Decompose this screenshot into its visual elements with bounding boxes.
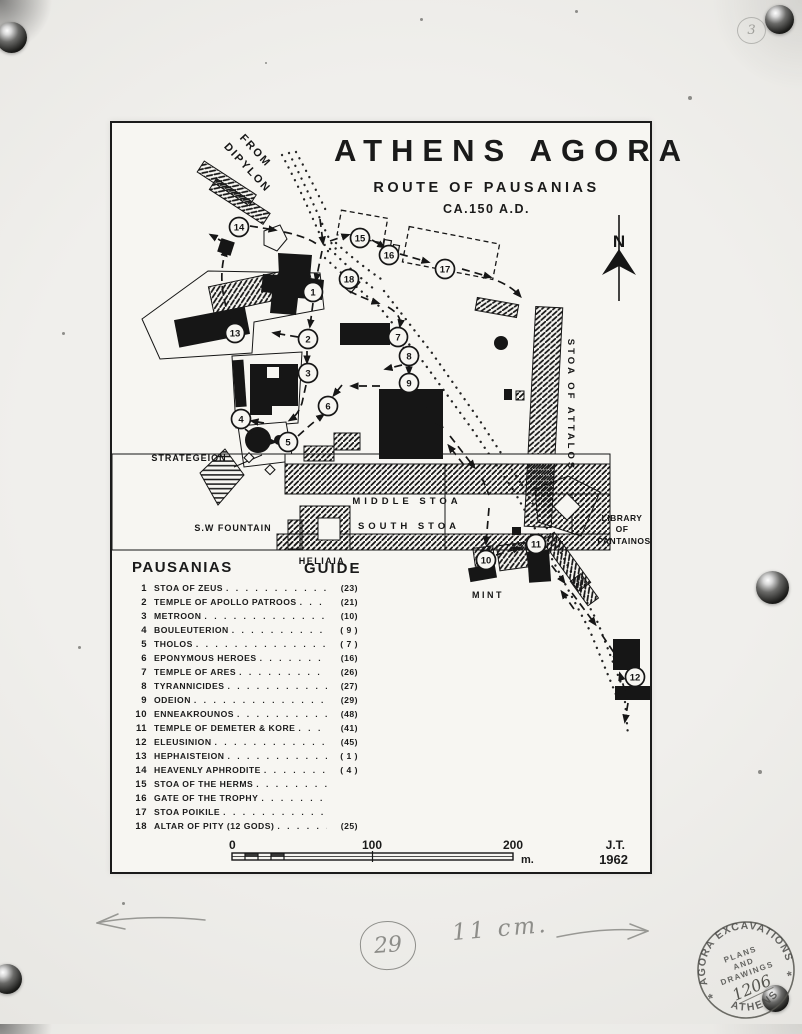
route-marker: 18 [340, 270, 359, 289]
legend-dot-leader [300, 597, 327, 607]
legend-item-number: 17 [132, 807, 147, 818]
route-marker: 9 [400, 374, 419, 393]
legend-list: 1STOA OF ZEUS(23)2TEMPLE OF APOLLO PATRO… [132, 583, 358, 835]
route-marker: 6 [319, 397, 338, 416]
route-marker-number: 10 [481, 555, 492, 566]
legend-item-name: STOA POIKILE [154, 807, 220, 817]
legend-item-name: ODEION [154, 695, 191, 705]
legend-item-number: 5 [132, 639, 147, 650]
route-marker: 15 [351, 229, 370, 248]
legend-item-name: ELEUSINION [154, 737, 212, 747]
stamp-star-left: * [706, 990, 716, 1006]
legend-item-name: BOULEUTERION [154, 625, 229, 635]
dust-speck [575, 10, 578, 13]
route-marker: 16 [380, 246, 399, 265]
legend-item-ref: (45) [330, 737, 358, 747]
legend-item-name: METROON [154, 611, 201, 621]
legend-item: 13HEPHAISTEION( 1 ) [132, 751, 358, 765]
scale-tick-100: 100 [362, 838, 382, 852]
legend-item: 2TEMPLE OF APOLLO PATROOS(21) [132, 597, 358, 611]
legend-dot-leader [204, 611, 327, 621]
map-sheet: FROMDIPYLONNSTRATEGEIONS.W FOUNTAINMIDDL… [110, 121, 652, 874]
route-marker-number: 15 [355, 233, 366, 244]
legend-item-number: 1 [132, 583, 147, 594]
route-marker-number: 3 [305, 368, 310, 379]
route-marker: 4 [232, 410, 251, 429]
legend-item-ref: ( 9 ) [330, 625, 358, 635]
legend-item-number: 16 [132, 793, 147, 804]
legend-item-ref: (23) [330, 583, 358, 593]
legend-item-number: 4 [132, 625, 147, 636]
legend-item: 15STOA OF THE HERMS [132, 779, 358, 793]
legend-item-ref: (27) [330, 681, 358, 691]
legend-dot-leader [264, 765, 327, 775]
credit-initials: J.T. [606, 838, 625, 852]
route-marker: 7 [389, 328, 408, 347]
route-marker: 5 [279, 433, 298, 452]
route-marker-number: 16 [384, 250, 395, 261]
legend-item-name: TEMPLE OF DEMETER & KORE [154, 723, 295, 733]
legend-dot-leader [223, 807, 327, 817]
map-label: MIDDLE STOA [352, 496, 461, 507]
legend-item-ref: (29) [330, 695, 358, 705]
route-marker: 1 [304, 283, 323, 302]
legend-item: 14HEAVENLY APHRODITE( 4 ) [132, 765, 358, 779]
archival-photo: { "photo": { "corner_number": "3" }, "sh… [0, 0, 802, 1024]
legend-item: 5THOLOS( 7 ) [132, 639, 358, 653]
scale-tick-200: 200 [503, 838, 523, 852]
legend-item-ref: (25) [330, 821, 358, 831]
scale-unit: m. [521, 854, 534, 866]
map-label: S.W FOUNTAIN [194, 523, 271, 533]
dust-speck [122, 902, 125, 905]
route-marker-number: 6 [325, 401, 330, 412]
route-marker: 13 [226, 324, 245, 343]
legend-dot-leader [232, 625, 327, 635]
mounting-pin [765, 5, 794, 34]
route-marker-number: 1 [310, 287, 316, 298]
mounting-pin [0, 964, 22, 994]
dust-speck [420, 18, 423, 21]
legend-header: PAUSANIAS GUIDE [132, 559, 358, 579]
route-marker-number: 4 [238, 414, 244, 425]
pencil-circled-number: 29 [358, 919, 417, 972]
legend-item: 9ODEION(29) [132, 695, 358, 709]
dust-speck [758, 770, 762, 774]
pencil-size-note: 11 cm. [451, 912, 549, 946]
route-marker-number: 14 [234, 222, 245, 233]
legend-item-name: HEAVENLY APHRODITE [154, 765, 261, 775]
dust-speck [62, 332, 65, 335]
route-marker: 12 [626, 668, 645, 687]
dust-speck [688, 96, 692, 100]
map-label: STOA OF ATTALOS [565, 339, 576, 471]
legend-item-name: ENNEAKROUNOS [154, 709, 234, 719]
map-title: ATHENS AGORA [334, 133, 639, 169]
legend-item: 8TYRANNICIDES(27) [132, 681, 358, 695]
legend-dot-leader [277, 821, 327, 831]
legend-item: 18ALTAR OF PITY (12 GODS)(25) [132, 821, 358, 835]
map-subtitle: ROUTE OF PAUSANIAS [334, 180, 639, 196]
legend-item: 17STOA POIKILE [132, 807, 358, 821]
legend-item-number: 14 [132, 765, 147, 776]
route-marker-number: 8 [406, 351, 411, 362]
north-arrow [602, 215, 636, 301]
legend-header-right: GUIDE [304, 560, 362, 577]
dust-speck [265, 62, 267, 64]
legend-item-name: TYRANNICIDES [154, 681, 224, 691]
map-label: SOUTH STOA [358, 521, 460, 532]
legend-item-ref: (10) [330, 611, 358, 621]
legend-item-ref: (21) [330, 597, 358, 607]
credit-year: 1962 [599, 852, 628, 867]
mounting-pin [756, 571, 789, 604]
legend-item-number: 12 [132, 737, 147, 748]
legend-header-left: PAUSANIAS [132, 559, 233, 576]
legend-item-name: THOLOS [154, 639, 193, 649]
legend-dot-leader [226, 583, 327, 593]
legend-item: 6EPONYMOUS HEROES(16) [132, 653, 358, 667]
legend-dot-leader [227, 681, 327, 691]
legend-item-name: GATE OF THE TROPHY [154, 793, 258, 803]
map-label: N [613, 232, 625, 251]
legend-item-ref: (48) [330, 709, 358, 719]
legend-item: 10ENNEAKROUNOS(48) [132, 709, 358, 723]
legend-item-number: 15 [132, 779, 147, 790]
route-marker: 11 [527, 535, 546, 554]
agora-stamp: AGORA EXCAVATIONS ATHENS * * PLANS AND D… [682, 906, 802, 1034]
route-marker-number: 17 [440, 264, 451, 275]
legend-dot-leader [261, 793, 327, 803]
map-label: STRATEGEION [151, 453, 226, 463]
legend-item-number: 13 [132, 751, 147, 762]
route-marker: 17 [436, 260, 455, 279]
legend-item: 4BOULEUTERION( 9 ) [132, 625, 358, 639]
legend-item-number: 7 [132, 667, 147, 678]
legend-item: 16GATE OF THE TROPHY [132, 793, 358, 807]
scale-tick-0: 0 [229, 838, 236, 852]
dust-speck [78, 646, 81, 649]
legend-item-name: EPONYMOUS HEROES [154, 653, 257, 663]
route-marker-number: 2 [305, 334, 310, 345]
legend-item-ref: (41) [330, 723, 358, 733]
legend-dot-leader [256, 779, 327, 789]
mounting-pin [0, 22, 27, 53]
map-label: LIBRARY [602, 513, 643, 523]
legend-item: 12ELEUSINION(45) [132, 737, 358, 751]
legend-dot-leader [215, 737, 327, 747]
pencil-corner-number: 3 [737, 17, 766, 44]
legend-item-ref: ( 4 ) [330, 765, 358, 775]
legend-item-ref: (26) [330, 667, 358, 677]
route-marker-number: 5 [285, 437, 291, 448]
legend-dot-leader [260, 653, 327, 663]
legend-item: 7TEMPLE OF ARES(26) [132, 667, 358, 681]
map-date: CA.150 A.D. [334, 202, 639, 216]
route-marker: 10 [477, 551, 496, 570]
legend-item-number: 8 [132, 681, 147, 692]
legend-dot-leader [196, 639, 327, 649]
map-label: OF [616, 524, 629, 534]
legend-item-name: ALTAR OF PITY (12 GODS) [154, 821, 274, 831]
legend-item-number: 3 [132, 611, 147, 622]
scale-bar: 0 100 200 m. J.T. 1962 [225, 837, 637, 873]
legend-dot-leader [227, 751, 327, 761]
route-marker-number: 13 [230, 328, 241, 339]
route-marker-number: 11 [531, 539, 542, 550]
legend-item-name: STOA OF ZEUS [154, 583, 223, 593]
legend-dot-leader [239, 667, 327, 677]
legend-item-number: 18 [132, 821, 147, 832]
legend-item-number: 9 [132, 695, 147, 706]
route-marker-number: 7 [395, 332, 400, 343]
legend-item-name: HEPHAISTEION [154, 751, 224, 761]
pausanias-guide-legend: PAUSANIAS GUIDE 1STOA OF ZEUS(23)2TEMPLE… [132, 559, 358, 835]
route-marker-number: 18 [344, 274, 355, 285]
legend-item-number: 6 [132, 653, 147, 664]
legend-item-ref: ( 1 ) [330, 751, 358, 761]
route-marker: 8 [400, 347, 419, 366]
legend-dot-leader [237, 709, 327, 719]
legend-dot-leader [194, 695, 327, 705]
legend-item-ref: ( 7 ) [330, 639, 358, 649]
legend-item-name: TEMPLE OF APOLLO PATROOS [154, 597, 297, 607]
legend-item-number: 2 [132, 597, 147, 608]
legend-item-ref: (16) [330, 653, 358, 663]
route-marker: 14 [230, 218, 249, 237]
route-marker-number: 12 [630, 672, 641, 683]
map-label: MINT [472, 590, 504, 600]
legend-item-number: 10 [132, 709, 147, 720]
legend-item: 11TEMPLE OF DEMETER & KORE(41) [132, 723, 358, 737]
route-marker-number: 9 [406, 378, 411, 389]
route-marker: 3 [299, 364, 318, 383]
legend-item: 3METROON(10) [132, 611, 358, 625]
legend-item-name: STOA OF THE HERMS [154, 779, 253, 789]
title-block: ATHENS AGORA ROUTE OF PAUSANIAS CA.150 A… [334, 133, 639, 216]
legend-item-name: TEMPLE OF ARES [154, 667, 236, 677]
route-marker: 2 [299, 330, 318, 349]
legend-item-number: 11 [132, 723, 147, 734]
map-label: PANTAINOS [597, 536, 650, 546]
legend-dot-leader [298, 723, 327, 733]
legend-item: 1STOA OF ZEUS(23) [132, 583, 358, 597]
